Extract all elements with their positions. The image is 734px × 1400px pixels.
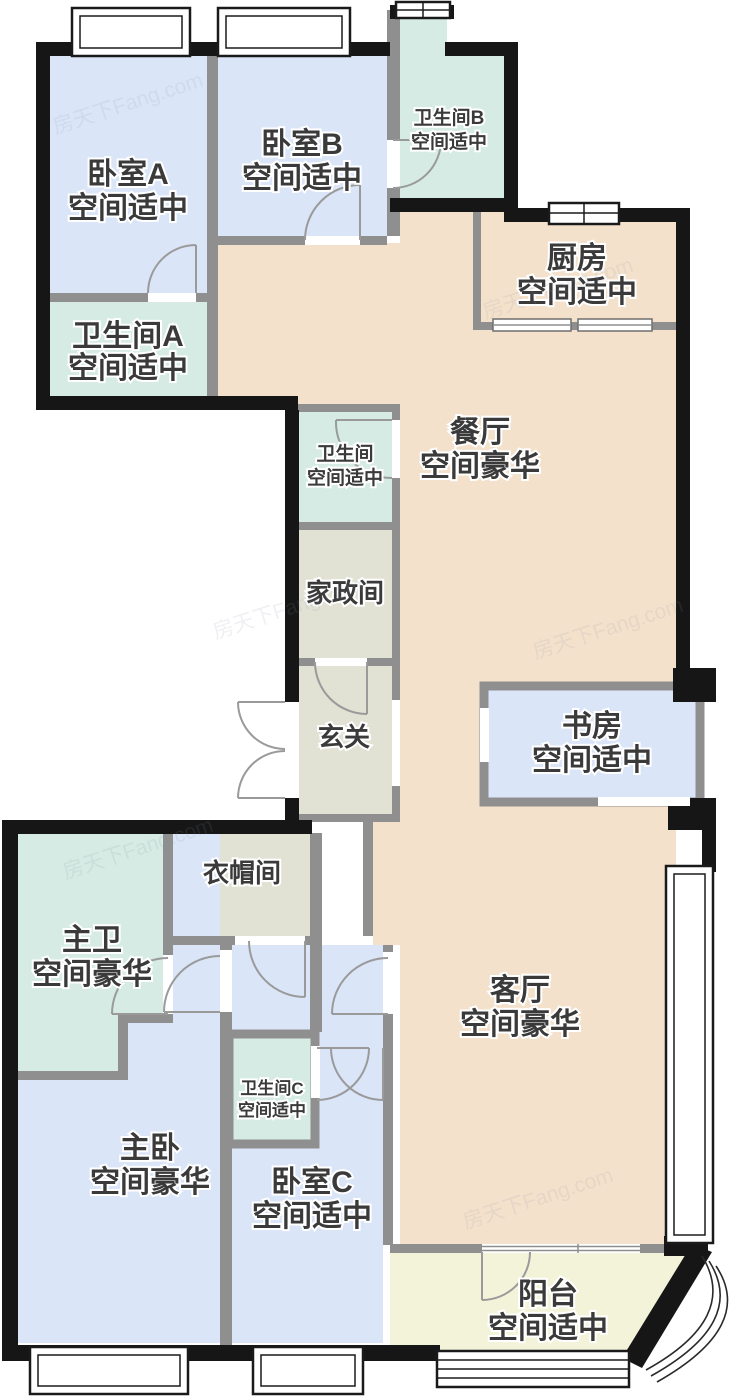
wall-segment [298, 404, 400, 412]
label-master-bedroom-size: 空间豪华 [90, 1165, 210, 1199]
label-bedroom-a-size: 空间适中 [68, 192, 188, 225]
label-bedroom-c: 卧室C [271, 1165, 353, 1199]
wall-segment [310, 833, 322, 1032]
window-bedroom-b [218, 8, 350, 56]
window-kitchen-top [549, 203, 619, 224]
window-frame [72, 8, 190, 56]
door-opening [598, 797, 690, 806]
label-dining: 餐厅 [450, 416, 510, 449]
balcony-sliding-door [482, 1244, 640, 1253]
window-bedroom-a [72, 8, 190, 56]
window-living-bay [666, 866, 713, 1243]
label-bathroom-c: 卫生间C [240, 1078, 303, 1098]
room-dining-upper [217, 243, 400, 397]
label-bathroom-c-size: 空间适中 [238, 1100, 306, 1120]
floorplan-svg: 卧室A 空间适中 卧室B 空间适中 卫生间B 空间适中 厨房 空间适中 卫生间A… [0, 0, 734, 1400]
wall-segment [118, 1014, 128, 1080]
door-opening [383, 952, 393, 1014]
label-bathroom-middle-size: 空间适中 [307, 466, 383, 489]
label-bedroom-c-size: 空间适中 [252, 1200, 372, 1233]
room-dining-strip [298, 390, 400, 406]
window-frame [253, 1347, 363, 1394]
label-master-bathroom: 主卫 [62, 924, 122, 957]
door-opening [315, 658, 367, 666]
label-bathroom-a: 卫生间A [72, 320, 184, 353]
label-bathroom-a-size: 空间适中 [68, 352, 188, 385]
wall-segment [18, 1071, 123, 1080]
wall-segment [504, 47, 518, 212]
sliding-door-opening [482, 1244, 640, 1253]
label-study: 书房 [562, 710, 622, 743]
door-opening [480, 708, 489, 762]
wall-segment [676, 208, 690, 702]
label-study-size: 空间适中 [532, 744, 652, 777]
label-bathroom-middle: 卫生间 [316, 442, 373, 465]
label-entry-hall: 玄关 [318, 722, 370, 752]
label-balcony-size: 空间适中 [488, 1312, 608, 1345]
wall-segment [285, 410, 299, 702]
room-bathroom-middle [298, 412, 392, 522]
door-opening [220, 950, 232, 1012]
label-bedroom-b: 卧室B [261, 127, 343, 161]
window-bedroom-c [253, 1347, 363, 1394]
room-living-strip [373, 822, 400, 945]
label-bathroom-b: 卫生间B [414, 106, 485, 129]
window-kitchen-bottom-1 [493, 319, 571, 331]
door-opening [392, 420, 400, 478]
window-balcony-bottom [437, 1351, 629, 1387]
door-opening [311, 1046, 320, 1098]
label-dining-size: 空间豪华 [420, 449, 540, 483]
label-master-bedroom: 主卧 [120, 1132, 180, 1165]
entry-door-opening [285, 702, 299, 798]
window-frame [218, 8, 350, 56]
wall-segment [363, 822, 373, 936]
wall-segment [390, 198, 518, 212]
wall-segment [36, 42, 50, 410]
label-bedroom-b-size: 空间适中 [242, 162, 362, 195]
door-opening [305, 236, 360, 245]
label-cloakroom: 衣帽间 [203, 858, 281, 888]
window-bathroom-b [396, 2, 450, 18]
door-arc-entry-right [238, 751, 285, 798]
wall-segment [298, 522, 400, 530]
label-balcony: 阳台 [518, 1277, 578, 1311]
label-bathroom-b-size: 空间适中 [411, 130, 487, 153]
floorplan-canvas: 卧室A 空间适中 卧室B 空间适中 卫生间B 空间适中 厨房 空间适中 卫生间A… [0, 0, 734, 1400]
wall-segment [36, 396, 298, 410]
window-frame [666, 866, 713, 1243]
window-kitchen-bottom-2 [578, 319, 652, 331]
wall-segment [218, 236, 387, 245]
wall-segment [673, 668, 716, 702]
label-living-size: 空间豪华 [460, 1007, 580, 1041]
label-living: 客厅 [490, 973, 550, 1007]
window-master-bedroom [30, 1347, 188, 1394]
passage-opening [392, 700, 400, 786]
label-bedroom-a: 卧室A [87, 157, 169, 191]
wall-segment [2, 820, 18, 1360]
door-opening [235, 936, 305, 945]
wall-segment [207, 56, 218, 302]
wall-segment [298, 814, 400, 822]
wall-segment [207, 302, 218, 396]
door-arc-entry-left [238, 702, 285, 749]
door-opening [148, 293, 196, 302]
door-opening [387, 140, 400, 188]
window-frame [30, 1347, 188, 1394]
wall-segment [473, 212, 481, 330]
label-master-bathroom-size: 空间豪华 [32, 957, 152, 991]
